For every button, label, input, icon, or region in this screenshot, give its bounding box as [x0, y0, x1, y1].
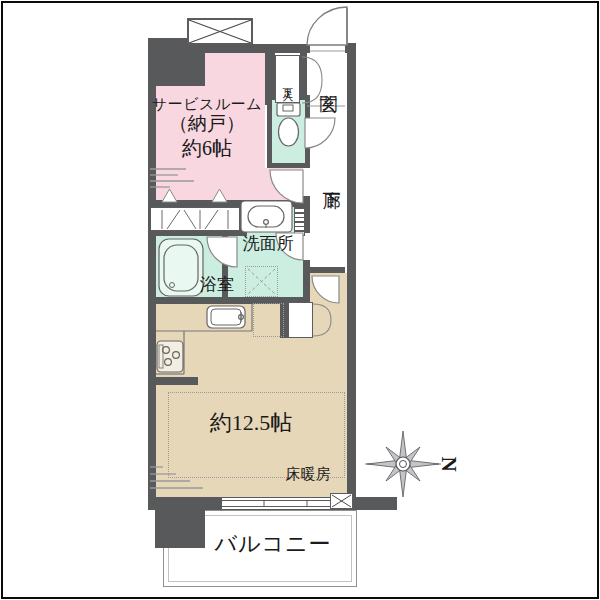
service-room-size: 約6帖 — [145, 136, 269, 160]
hallway-label: 廊下 — [320, 157, 342, 199]
service-room-label: サービスルーム （納戸） 約6帖 — [145, 95, 269, 160]
service-room-floor — [205, 53, 265, 86]
vent-box — [330, 493, 353, 509]
wall-segment — [347, 43, 356, 510]
balcony-label: バルコニー — [213, 531, 333, 557]
floor-plan-canvas: サービスルーム （納戸） 約6帖 玄関 下足入 廊下 洗面所 浴室 約12.5帖… — [0, 0, 600, 600]
pipe-space-box — [187, 18, 253, 45]
toilet-floor — [272, 100, 305, 163]
wall-segment — [205, 44, 310, 53]
wall-segment — [303, 267, 345, 273]
refrigerator-space — [253, 303, 284, 337]
shelf-hatch — [294, 207, 305, 236]
washroom-label: 洗面所 — [238, 234, 298, 254]
wall-segment — [148, 231, 240, 236]
wall-segment — [148, 377, 198, 385]
service-room-floor — [265, 168, 303, 200]
bathroom-label: 浴室 — [196, 275, 238, 295]
wall-segment — [222, 236, 228, 240]
storage-closet-box — [288, 302, 313, 338]
entrance-label: 玄関 — [317, 58, 339, 106]
north-label: N — [437, 452, 461, 476]
wall-segment — [148, 200, 303, 207]
service-room-name: サービスルーム — [145, 95, 269, 113]
floor-heating-label: 床暖房 — [282, 465, 334, 483]
shoe-cabinet-label: 下足入 — [281, 61, 294, 101]
ldk-floor — [310, 273, 347, 304]
window-opening — [222, 498, 330, 509]
living-size-label: 約12.5帖 — [191, 410, 311, 436]
closet-box — [150, 207, 240, 231]
wall-segment — [240, 207, 247, 236]
wall-segment — [148, 38, 205, 86]
service-room-sub: （納戸） — [145, 113, 269, 136]
structural-pillar — [155, 510, 205, 548]
washing-machine-space — [245, 266, 278, 297]
